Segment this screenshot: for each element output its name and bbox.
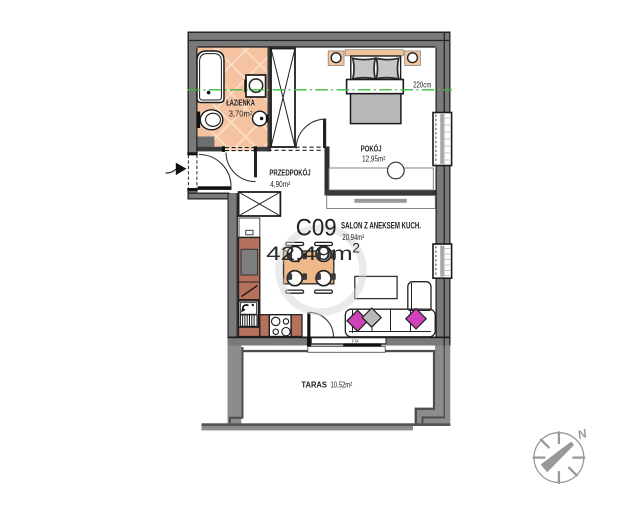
svg-text:12,95m²: 12,95m² [362, 154, 385, 164]
svg-text:4,90m²: 4,90m² [270, 179, 290, 189]
svg-text:2: 2 [352, 240, 360, 256]
svg-text:42,49m: 42,49m [266, 242, 352, 264]
svg-text:220cm: 220cm [413, 80, 431, 89]
svg-text:PRZEDPOKÓJ: PRZEDPOKÓJ [269, 166, 310, 177]
svg-text:3,70m²: 3,70m² [229, 109, 253, 119]
svg-text:ŁAZIENKA: ŁAZIENKA [226, 98, 255, 108]
svg-text:TARAS: TARAS [301, 379, 327, 389]
svg-text:10,52m²: 10,52m² [331, 379, 353, 389]
svg-text:SALON Z ANEKSEM KUCH.: SALON Z ANEKSEM KUCH. [341, 221, 421, 231]
svg-text:C09: C09 [296, 214, 337, 241]
svg-text:FIX: FIX [352, 338, 359, 343]
svg-text:POKÓJ: POKÓJ [361, 142, 382, 153]
